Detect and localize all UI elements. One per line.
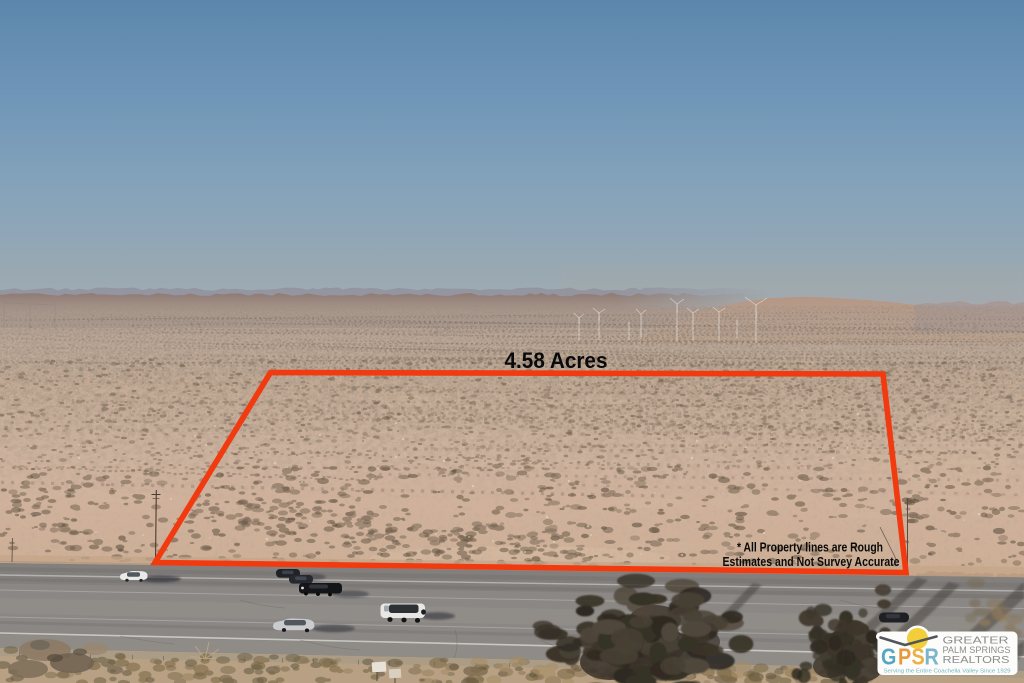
svg-text:PALM SPRINGS: PALM SPRINGS (943, 645, 1011, 655)
svg-text:Estimates and Not Survey Accur: Estimates and Not Survey Accurate (723, 554, 900, 569)
svg-text:S: S (912, 644, 925, 670)
svg-text:* All Property lines are Rough: * All Property lines are Rough (737, 540, 883, 555)
svg-text:R: R (925, 644, 940, 670)
svg-text:G: G (881, 644, 896, 670)
svg-text:Serving the Entire Coachella V: Serving the Entire Coachella Valley Sinc… (884, 668, 1011, 674)
svg-text:REALTORS: REALTORS (943, 655, 1010, 666)
svg-text:P: P (898, 644, 911, 670)
svg-text:4.58 Acres: 4.58 Acres (505, 348, 608, 373)
